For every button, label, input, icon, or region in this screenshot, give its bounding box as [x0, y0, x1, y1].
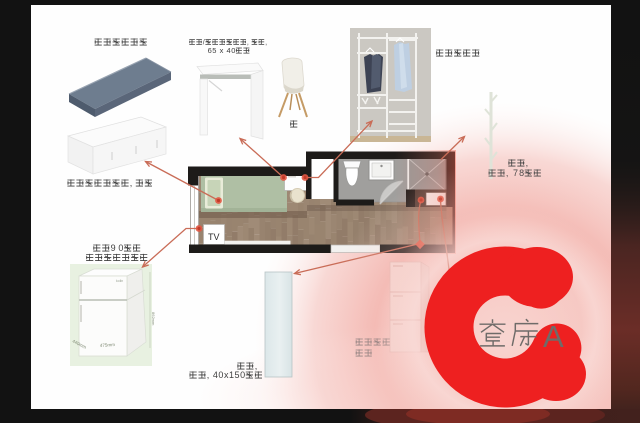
svg-text:TV: TV: [208, 232, 220, 242]
svg-text:,: ,: [247, 39, 249, 46]
svg-text:,: ,: [255, 361, 258, 371]
svg-text:A: A: [543, 319, 564, 354]
svg-text:kolin: kolin: [116, 279, 123, 283]
svg-text:862mm: 862mm: [151, 312, 156, 326]
svg-text:,: ,: [130, 178, 133, 188]
svg-text:,: ,: [265, 39, 267, 46]
svg-text:65 x 40: 65 x 40: [208, 46, 236, 55]
svg-text:, 40x150: , 40x150: [207, 370, 245, 380]
svg-text:475mm: 475mm: [100, 342, 116, 348]
svg-text:/: /: [203, 39, 205, 46]
